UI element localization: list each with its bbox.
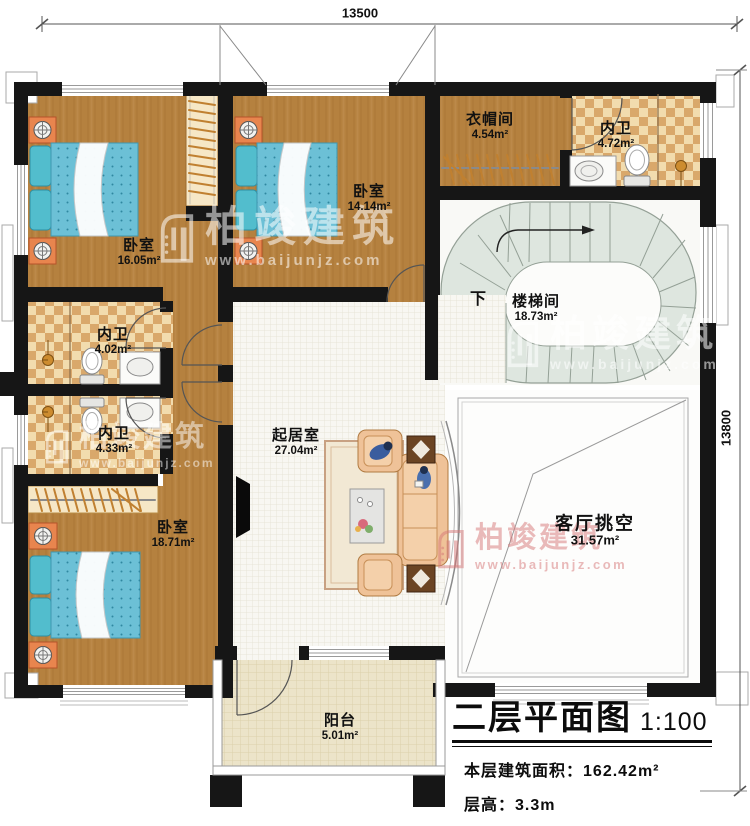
floor-height-label: 层高： <box>464 797 515 814</box>
pillow <box>30 556 51 594</box>
title-underline <box>452 740 712 743</box>
room-label-bedroom-2: 卧室 14.14m² <box>348 184 391 214</box>
room-label-bath-west: 内卫 4.02m² <box>95 327 131 357</box>
tv-icon <box>236 476 250 538</box>
pillow <box>236 190 257 230</box>
room-label-cloakroom: 衣帽间 4.54m² <box>466 112 514 142</box>
drawing-scale: 1:100 <box>640 707 708 737</box>
floor-height-row: 层高：3.3m <box>464 791 747 815</box>
room-label-stairwell: 楼梯间 18.73m² <box>512 294 560 324</box>
room-label-balcony: 阳台 5.01m² <box>322 713 358 743</box>
floor-area-label: 本层建筑面积： <box>464 763 583 780</box>
pillow <box>30 190 51 230</box>
toilet <box>624 145 650 186</box>
title-block: 二层平面图 1:100 本层建筑面积：162.42m² 层高：3.3m <box>452 700 747 815</box>
pillow <box>30 146 51 186</box>
room-label-bath-north: 内卫 4.72m² <box>598 121 634 151</box>
dimension-top: 13500 <box>342 6 378 21</box>
room-label-bedroom-1: 卧室 16.05m² <box>118 238 161 268</box>
coffee-table <box>350 489 384 543</box>
room-label-living-room: 起居室 27.04m² <box>272 428 320 458</box>
armchair <box>358 554 402 596</box>
pillow <box>30 598 51 636</box>
side-table <box>407 565 435 592</box>
floor-height-value: 3.3m <box>515 797 555 814</box>
floor-plan-page: 柏竣建筑 www.baijunjz.com 柏竣建筑 www.baijunjz.… <box>0 0 750 826</box>
room-label-living-void: 客厅挑空 31.57m² <box>555 514 635 549</box>
side-table <box>407 436 435 463</box>
pillow <box>236 146 257 186</box>
floor-area-row: 本层建筑面积：162.42m² <box>464 757 747 781</box>
floor-area-value: 162.42m² <box>583 763 660 780</box>
dimension-right: 13800 <box>719 410 734 446</box>
stair-down-label: 下 <box>470 285 486 309</box>
room-label-bedroom-3: 卧室 18.71m² <box>152 520 195 550</box>
title-underline-thin <box>452 746 712 747</box>
room-label-bath-southwest: 内卫 4.33m² <box>96 426 132 456</box>
drawing-title: 二层平面图 <box>452 700 632 737</box>
